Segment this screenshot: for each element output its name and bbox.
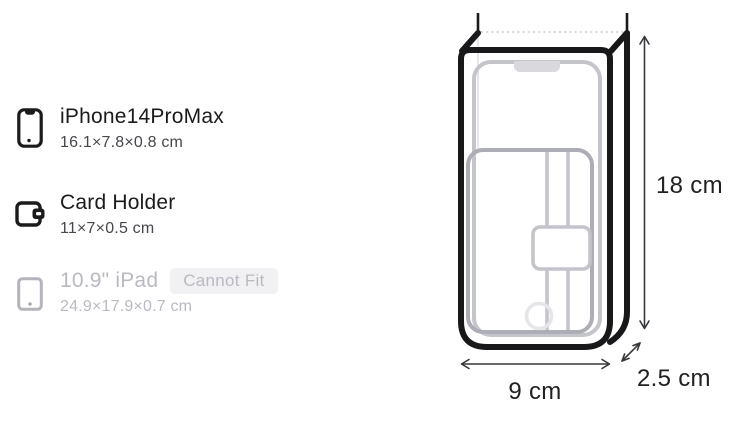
- item-label: iPhone14ProMax: [60, 103, 224, 130]
- bag-outline: [461, 33, 627, 347]
- height-dimension-label: 18 cm: [656, 172, 723, 199]
- height-arrow: [640, 37, 649, 329]
- item-dimensions: 11×7×0.5 cm: [60, 218, 175, 239]
- width-arrow: [462, 360, 610, 369]
- item-label: 10.9" iPad: [60, 267, 158, 294]
- width-dimension-label: 9 cm: [508, 378, 561, 405]
- bag-dimensions-diagram: 18 cm 9 cm 2.5 cm: [440, 0, 750, 426]
- ghost-card-holder-outline: [468, 150, 592, 332]
- fit-item-ipad: 10.9" iPad Cannot Fit 24.9×17.9×0.7 cm: [14, 267, 278, 317]
- wallet-icon: [15, 200, 46, 233]
- depth-dimension-label: 2.5 cm: [637, 365, 711, 392]
- size-fit-infographic: iPhone14ProMax 16.1×7.8×0.8 cm Card Hold…: [0, 0, 750, 426]
- cannot-fit-badge: Cannot Fit: [170, 268, 277, 294]
- fit-item-card-holder: Card Holder 11×7×0.5 cm: [14, 189, 175, 239]
- card-holder-strap: [533, 227, 590, 269]
- ghost-phone-notch: [514, 61, 560, 72]
- smartphone-icon: [17, 108, 43, 153]
- item-dimensions: 16.1×7.8×0.8 cm: [60, 132, 224, 153]
- item-label: Card Holder: [60, 189, 175, 216]
- item-dimensions: 24.9×17.9×0.7 cm: [60, 296, 278, 317]
- tablet-icon: [17, 277, 43, 316]
- ghost-phone-outline: [474, 61, 600, 335]
- fit-item-iphone: iPhone14ProMax 16.1×7.8×0.8 cm: [14, 103, 224, 153]
- depth-arrow: [622, 343, 640, 361]
